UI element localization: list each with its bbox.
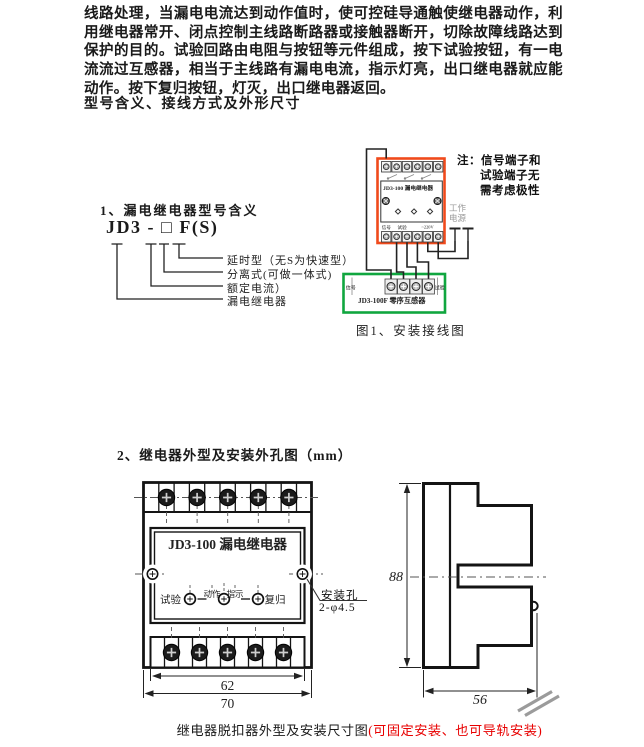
document-page: 线路处理，当漏电电流达到动作值时，使可控硅导通触使继电器动作，利用继电器常开、闭… bbox=[0, 0, 644, 747]
relay-title: JD3-100 漏电继电器 bbox=[383, 184, 433, 192]
working-power-label: 工作电源 bbox=[449, 203, 468, 223]
ct-label-signal: 信号 bbox=[346, 285, 356, 292]
note-line2: 试验端子无 bbox=[480, 169, 540, 184]
footer-caption-red: (可固定安装、也可导轨安装) bbox=[368, 723, 542, 738]
wiring-relay-unit: JD3-100 漏电继电器 信号 试验 ~220V bbox=[378, 159, 445, 244]
test-button bbox=[185, 594, 196, 605]
hatch-marks bbox=[518, 692, 559, 716]
footer-caption: 继电器脱扣器外型及安装尺寸图(可固定安装、也可导轨安装) bbox=[0, 720, 644, 739]
front-btn-indicate-label: 指示 bbox=[226, 589, 243, 599]
relay-term-label-test: 试验 bbox=[398, 224, 408, 231]
section1-heading: 型号含义、接线方式及外形尺寸 bbox=[84, 93, 301, 113]
dim-70: 70 bbox=[221, 696, 235, 711]
figure1-caption: 图1、安装接线图 bbox=[356, 320, 466, 339]
dim-88: 88 bbox=[389, 570, 403, 585]
intro-paragraph: 线路处理，当漏电电流达到动作值时，使可控硅导通触使继电器动作，利用继电器常开、闭… bbox=[84, 5, 563, 99]
relay-term-label-signal: 信号 bbox=[382, 224, 392, 231]
note-line1: 注：信号端子和 bbox=[457, 154, 541, 169]
dim-62: 62 bbox=[221, 678, 235, 693]
front-btn-reset-label: 复归 bbox=[265, 593, 286, 606]
section2-heading: 2、继电器外型及安装外孔图（mm） bbox=[117, 444, 352, 464]
side-profile-outline bbox=[424, 484, 532, 668]
relay-term-label-voltage: ~220V bbox=[422, 224, 435, 229]
front-btn-test-label: 试验 bbox=[160, 593, 181, 606]
model-label-relay: 漏电继电器 bbox=[227, 293, 287, 309]
mounting-hole-size: 2-φ4.5 bbox=[319, 602, 356, 614]
mounting-hole-left bbox=[143, 565, 162, 584]
note-line3: 需考虑极性 bbox=[480, 184, 540, 199]
footer-caption-black: 继电器脱扣器外型及安装尺寸图 bbox=[177, 723, 369, 738]
ct-label-test: 试验 bbox=[435, 285, 445, 292]
front-title: JD3-100 漏电继电器 bbox=[168, 536, 287, 552]
model-fork-lines bbox=[95, 238, 225, 306]
mounting-hole-right bbox=[293, 565, 312, 584]
model-code: JD3 - □ F(S) bbox=[106, 217, 218, 238]
reset-button bbox=[253, 594, 264, 605]
side-view-drawing: 88 56 bbox=[378, 468, 644, 720]
ct-title: JD3-100F 零序互感器 bbox=[358, 296, 426, 305]
dim-56: 56 bbox=[473, 693, 487, 708]
mounting-hole-label: 安装孔 bbox=[321, 587, 359, 603]
